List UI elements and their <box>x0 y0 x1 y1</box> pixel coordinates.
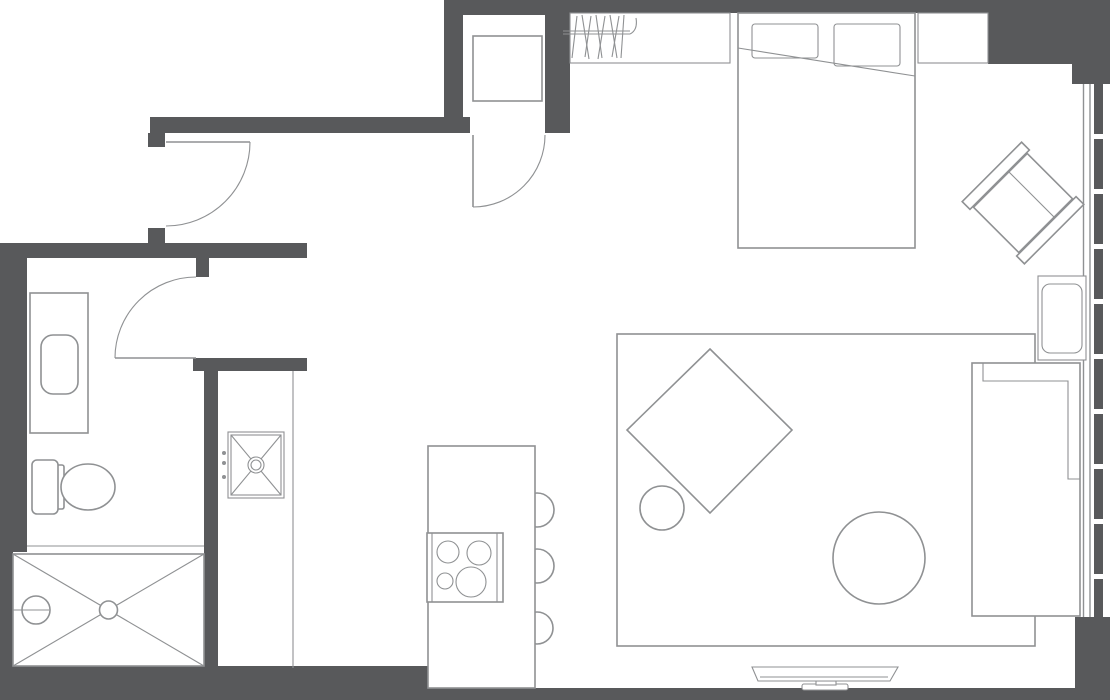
tv-screen <box>752 667 898 681</box>
wall-left-outer-lower <box>0 552 13 668</box>
closet <box>563 13 730 63</box>
wall-entry-left <box>444 0 463 133</box>
wall-top-thin <box>570 0 990 13</box>
wall-corner-bottom-right <box>1075 617 1110 700</box>
closet-outline <box>570 13 730 63</box>
shower-drain <box>100 601 118 619</box>
entry <box>473 36 542 101</box>
entry-door-swing-arc <box>473 135 545 207</box>
wall-jamb-upper <box>148 133 165 147</box>
entry-door <box>473 135 545 207</box>
burner-top-right <box>467 541 491 565</box>
bedroom <box>563 13 988 248</box>
floor-plan-canvas <box>0 0 1110 700</box>
burner-bottom-left <box>437 573 453 589</box>
toilet <box>32 460 115 514</box>
shower <box>13 546 204 666</box>
wall-niche <box>918 13 988 63</box>
armchair <box>962 142 1084 264</box>
wall-corner-top-right-step <box>1072 64 1110 84</box>
bed <box>738 13 915 248</box>
small-round-table <box>640 486 684 530</box>
armchair-seat <box>974 154 1073 253</box>
bathroom-door-swing-arc <box>115 277 196 358</box>
wall-hall-top <box>150 117 470 133</box>
tv-stand-neck <box>816 681 836 685</box>
kitchen <box>427 446 554 688</box>
utility-sink-drain-inner <box>251 460 261 470</box>
pillow-left <box>752 24 818 58</box>
burner-top-left <box>437 541 459 563</box>
toilet-tank <box>32 460 58 514</box>
wall-entry-top <box>444 0 570 15</box>
wall-jamb-lower <box>148 228 165 243</box>
utility-column <box>222 371 293 668</box>
floor-plan-page <box>0 0 1110 700</box>
wall-bathroom-top <box>0 243 307 258</box>
bathroom <box>13 293 204 666</box>
bathroom-door <box>115 277 196 358</box>
entry-cabinet <box>473 36 542 101</box>
wall-bottom <box>443 688 1110 700</box>
wash-basin <box>41 335 78 394</box>
wall-corner-top-right <box>988 0 1110 64</box>
faucet-knob-dot-1 <box>222 451 226 455</box>
faucet-knob-dot-2 <box>222 461 226 465</box>
toilet-bowl <box>61 464 115 510</box>
side-table <box>1038 276 1086 360</box>
wall-utility-vertical <box>204 371 218 668</box>
interior-door <box>166 142 250 226</box>
side-table-top <box>1042 284 1082 353</box>
wall-entry-right <box>545 15 570 133</box>
wall-bathroom-right-horizontal <box>193 358 307 371</box>
sofa <box>972 363 1080 616</box>
faucet-knob-dot-3 <box>222 475 226 479</box>
wall-left-outer-upper <box>0 258 27 552</box>
burner-bottom-right <box>456 567 486 597</box>
sofa-outline <box>972 363 1080 616</box>
wall-bottom-left <box>0 666 443 700</box>
wall-bathroom-door-jamb <box>196 258 209 277</box>
tv-unit <box>752 667 898 690</box>
cooktop <box>427 533 503 602</box>
interior-door-swing-arc <box>166 142 250 226</box>
round-coffee-table <box>833 512 925 604</box>
pillow-right <box>834 24 900 66</box>
